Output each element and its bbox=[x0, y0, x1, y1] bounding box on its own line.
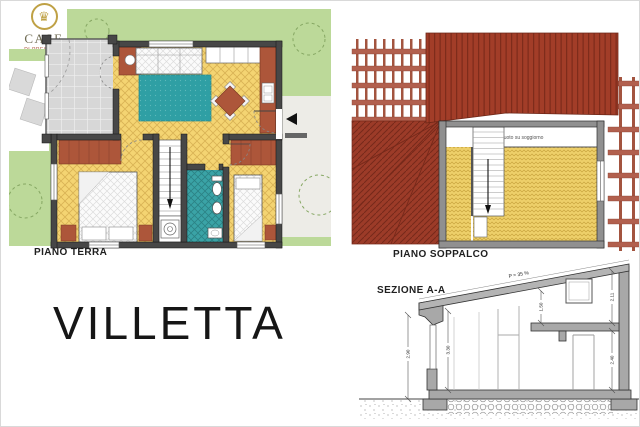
floor-slab bbox=[429, 390, 631, 399]
rug bbox=[139, 75, 211, 121]
dim-left-outer: 2.90 bbox=[406, 349, 411, 358]
nightstand bbox=[139, 225, 152, 241]
nightstand bbox=[265, 225, 276, 240]
label-piano-soppalco: PIANO SOPPALCO bbox=[393, 249, 488, 260]
sink bbox=[208, 228, 222, 238]
ground bbox=[359, 399, 640, 419]
sofa bbox=[136, 48, 202, 74]
beam bbox=[559, 331, 566, 341]
label-sezione: SEZIONE A-A bbox=[377, 285, 445, 296]
footing bbox=[423, 399, 447, 410]
window bbox=[566, 279, 592, 303]
mezzanine-slab bbox=[531, 323, 619, 331]
wardrobe bbox=[59, 140, 121, 164]
page-title: VILLETTA bbox=[53, 300, 286, 346]
dim-right-lower: 2.40 bbox=[610, 355, 615, 364]
drawing-sheet: ♛ CASE DI PRESTIGIO bbox=[0, 0, 640, 427]
dim-interior-left: 3.30 bbox=[446, 345, 451, 354]
mezzanine-room: Vuoto su soggiorno bbox=[439, 121, 604, 248]
void-note: Vuoto su soggiorno bbox=[501, 135, 544, 141]
window bbox=[597, 161, 604, 201]
left-wall bbox=[427, 369, 437, 390]
pillow bbox=[236, 178, 260, 189]
nightstand bbox=[61, 225, 76, 241]
pillow bbox=[109, 227, 133, 240]
pillow bbox=[82, 227, 106, 240]
floor-plan-piano-terra bbox=[9, 9, 331, 249]
bathroom bbox=[187, 170, 223, 242]
main-roof bbox=[426, 33, 618, 123]
toilet-icon bbox=[213, 183, 222, 196]
dim-mezzanine: 1.50 bbox=[539, 302, 544, 311]
footing bbox=[611, 399, 637, 410]
floor-plan-piano-soppalco: Vuoto su soggiorno bbox=[346, 9, 640, 257]
veranda-roof bbox=[352, 121, 441, 244]
doorstep bbox=[285, 133, 307, 138]
right-wall bbox=[619, 266, 629, 390]
dim-right-upper: 2.11 bbox=[610, 292, 615, 301]
bidet-icon bbox=[213, 202, 222, 214]
interior-lines bbox=[430, 279, 594, 390]
roof-slope-label: P = 35 % bbox=[508, 270, 530, 280]
tall-window bbox=[430, 325, 436, 369]
pergola-left bbox=[352, 39, 428, 127]
staircase bbox=[159, 140, 181, 242]
toilet-tank bbox=[212, 176, 222, 181]
plant-icon bbox=[125, 55, 135, 65]
label-piano-terra: PIANO TERRA bbox=[34, 247, 107, 258]
side-path bbox=[282, 96, 331, 237]
structure bbox=[419, 264, 637, 410]
patio bbox=[46, 39, 116, 139]
